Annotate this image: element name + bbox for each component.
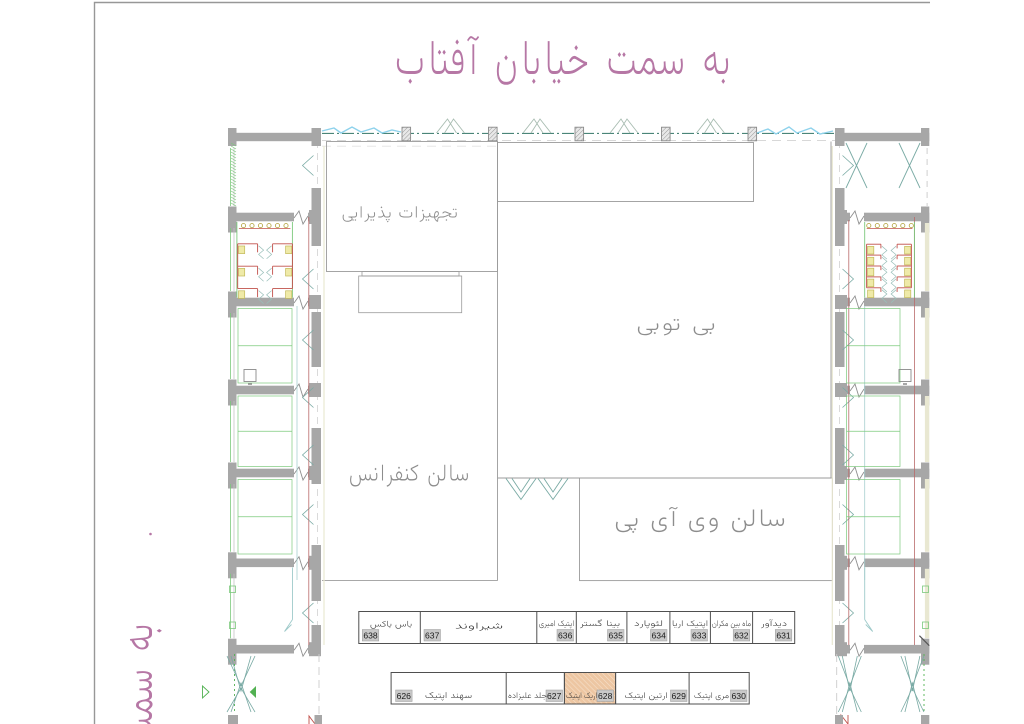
svg-text:635: 635 <box>609 631 624 641</box>
svg-text:638: 638 <box>363 631 378 641</box>
svg-text:633: 633 <box>692 631 707 641</box>
svg-text:630: 630 <box>732 691 747 701</box>
svg-text:631: 631 <box>776 631 791 641</box>
svg-text:627: 627 <box>547 691 562 701</box>
svg-text:634: 634 <box>652 631 667 641</box>
svg-text:629: 629 <box>672 691 687 701</box>
svg-text:636: 636 <box>558 631 573 641</box>
svg-text:626: 626 <box>397 691 412 701</box>
svg-text:637: 637 <box>425 631 440 641</box>
svg-text:628: 628 <box>598 691 613 701</box>
svg-text:632: 632 <box>734 631 749 641</box>
